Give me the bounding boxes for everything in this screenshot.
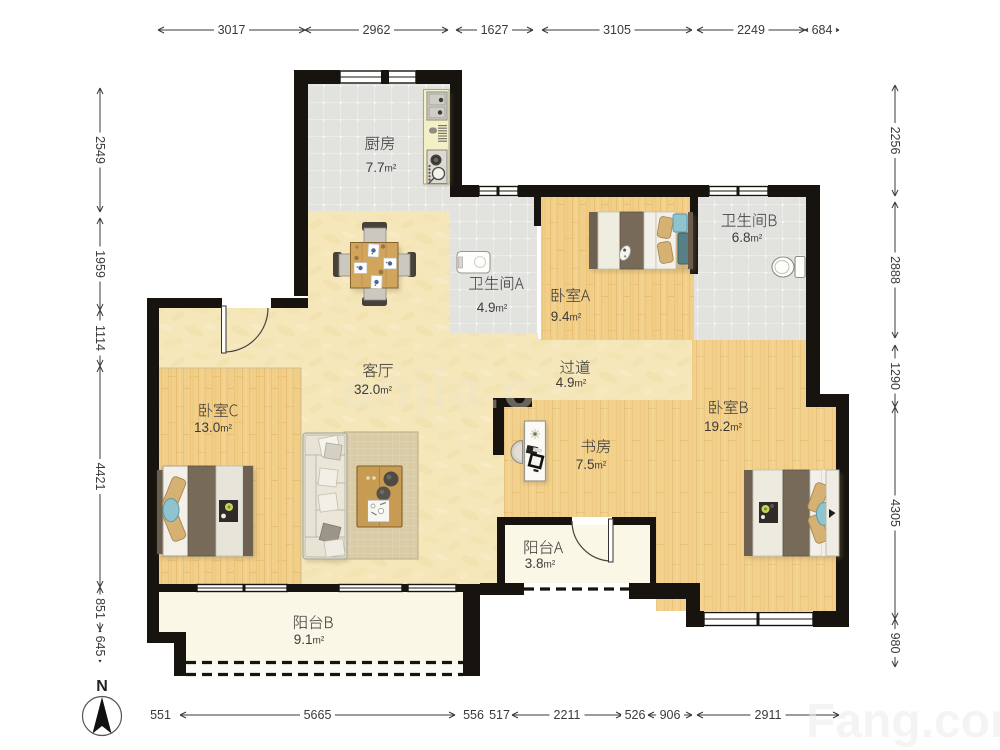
svg-text:Fang.com: Fang.com [806,695,1000,748]
svg-text:1114: 1114 [93,325,107,351]
svg-text:2249: 2249 [737,23,765,37]
svg-text:2888: 2888 [888,256,902,284]
svg-text:3105: 3105 [603,23,631,37]
svg-text:526: 526 [625,708,646,722]
svg-text:980: 980 [888,633,902,654]
svg-text:1959: 1959 [93,250,107,278]
svg-text:4305: 4305 [888,499,902,527]
svg-text:2256: 2256 [888,127,902,155]
svg-text:2911: 2911 [755,708,782,722]
svg-text:684: 684 [812,23,833,37]
svg-text:N: N [96,678,108,695]
svg-text:1627: 1627 [481,23,509,37]
svg-text:1290: 1290 [888,362,902,390]
svg-text:4421: 4421 [93,463,107,491]
svg-text:2211: 2211 [554,708,581,722]
svg-text:851: 851 [93,598,107,619]
svg-text:551: 551 [150,708,171,722]
svg-text:2549: 2549 [93,136,107,164]
svg-text:2962: 2962 [363,23,391,37]
svg-text:556: 556 [463,708,484,722]
svg-text:517: 517 [489,708,510,722]
svg-text:906: 906 [660,708,681,722]
svg-text:5665: 5665 [304,708,332,722]
svg-text:645: 645 [93,636,107,657]
svg-text:3017: 3017 [218,23,246,37]
